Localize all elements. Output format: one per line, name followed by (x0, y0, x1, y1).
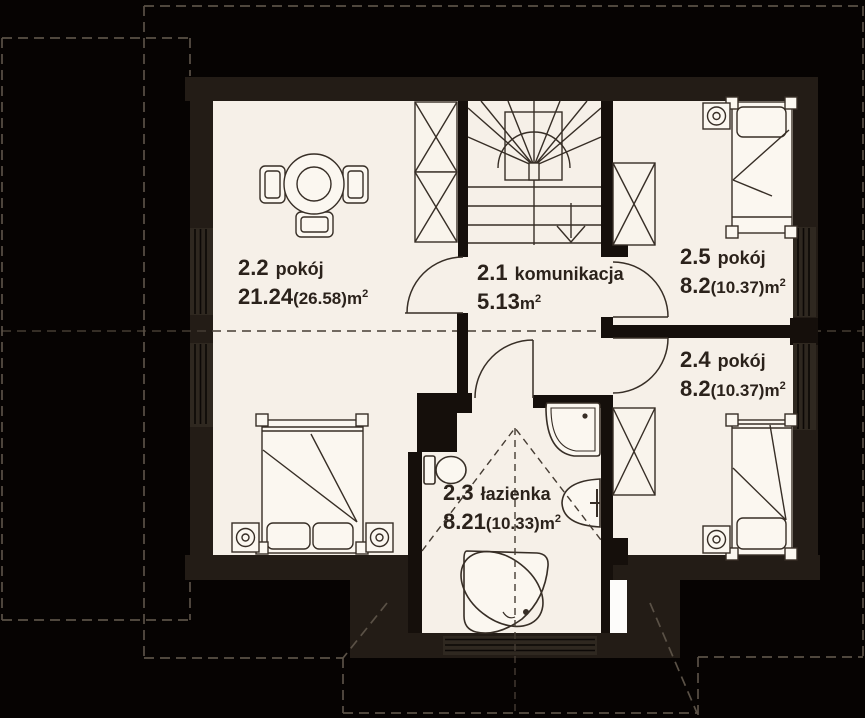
room-area-unit: m (540, 514, 555, 533)
room-label-2-3: 2.3łazienka 8.21(10.33)m2 (443, 482, 561, 533)
room-name: pokój (276, 259, 324, 279)
room-name: pokój (718, 351, 766, 371)
floor-plan-page: 2.2pokój 21.24(26.58)m2 2.1komunikacja 5… (0, 0, 865, 718)
room-area-alt: (26.58) (293, 289, 347, 308)
room-area-sup: 2 (780, 380, 786, 392)
room-area-sup: 2 (555, 513, 561, 525)
room-name: komunikacja (515, 264, 624, 284)
room-area-alt: (10.37) (711, 381, 765, 400)
window-bottom-bath (443, 636, 597, 655)
pillow (737, 518, 786, 549)
window-left-lower (190, 343, 213, 427)
chimney-block (610, 580, 627, 633)
room-number: 2.2 (238, 255, 269, 280)
room-area: 21.24 (238, 284, 293, 309)
pillow (267, 523, 310, 549)
room-area-alt: (10.37) (711, 278, 765, 297)
round-table-icon (284, 154, 344, 214)
room-area-unit: m (764, 381, 779, 400)
bath-wall-left (408, 452, 422, 633)
window-right-upper (793, 227, 816, 317)
room-area-unit: m (347, 289, 362, 308)
room-number: 2.3 (443, 480, 474, 505)
room-area: 5.13 (477, 289, 520, 314)
wardrobe-icon (613, 163, 655, 245)
room-area: 8.2 (680, 376, 711, 401)
pillow (313, 523, 353, 549)
bath-wall-block (417, 398, 457, 452)
room-label-2-2: 2.2pokój 21.24(26.58)m2 (238, 257, 368, 308)
room-name: łazienka (481, 484, 551, 504)
room-area-alt: (10.33) (486, 514, 540, 533)
divider-wall-24-25 (601, 325, 793, 338)
room-number: 2.5 (680, 244, 711, 269)
right-wall-pier (790, 318, 818, 345)
wall-left (190, 101, 213, 555)
nightstand-with-lamp (232, 523, 259, 552)
room-label-2-5: 2.5pokój 8.2(10.37)m2 (680, 246, 786, 297)
wardrobe-icon (613, 408, 655, 495)
bath-corner-stub (613, 538, 628, 565)
room-label-2-1: 2.1komunikacja 5.13m2 (477, 262, 624, 313)
stair-wall-right (601, 101, 613, 257)
room-area-sup: 2 (780, 277, 786, 289)
room-area: 8.21 (443, 509, 486, 534)
stair-newel-post (529, 163, 539, 180)
room-area: 8.2 (680, 273, 711, 298)
room-area-sup: 2 (362, 288, 368, 300)
room-label-2-4: 2.4pokój 8.2(10.37)m2 (680, 349, 786, 400)
room-area-unit: m (520, 294, 535, 313)
nightstand-with-lamp (366, 523, 393, 552)
wall-top (185, 77, 818, 101)
room-area-unit: m (764, 278, 779, 297)
window-left-upper (190, 228, 213, 315)
room-area-sup: 2 (535, 293, 541, 305)
nightstand-with-lamp (703, 103, 730, 129)
nightstand-with-lamp (703, 526, 730, 553)
hall-wall-between-doors (601, 317, 613, 338)
room-number: 2.4 (680, 347, 711, 372)
wardrobe-icon (415, 102, 457, 242)
wall-bottom-left (185, 555, 422, 580)
stair-wall-left (458, 101, 468, 257)
room-number: 2.1 (477, 260, 508, 285)
room-name: pokój (718, 248, 766, 268)
pillow (737, 107, 786, 137)
